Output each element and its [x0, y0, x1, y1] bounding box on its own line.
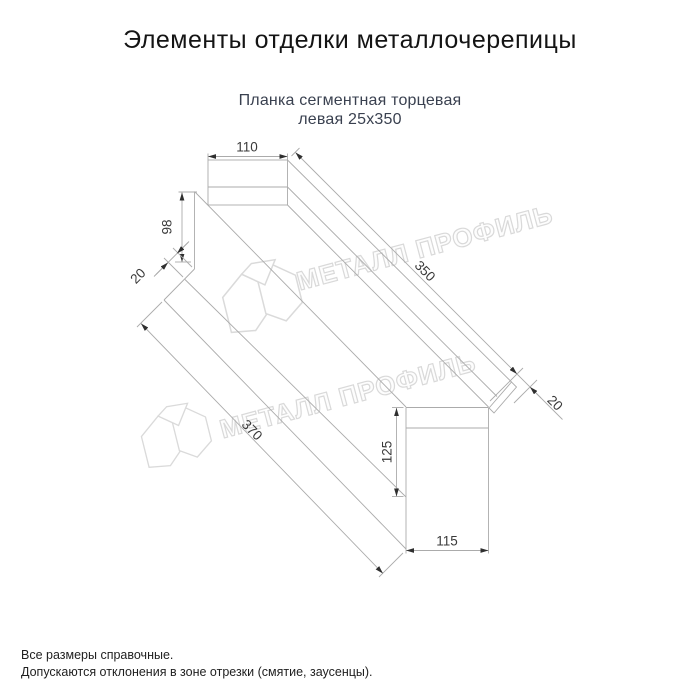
- dim-label-right-height: 125: [380, 441, 395, 464]
- dimension-lines: [137, 148, 563, 577]
- part-outline: [164, 160, 517, 554]
- page-title: Элементы отделки металлочерепицы: [123, 26, 577, 55]
- footnote-reference-sizes: Все размеры справочные.: [21, 648, 173, 662]
- dim-label-top-width: 110: [236, 140, 258, 155]
- part-name-line2: левая 25х350: [298, 111, 401, 129]
- part-name-line1: Планка сегментная торцевая: [239, 92, 462, 110]
- drawing-sheet: МЕТАЛЛ ПРОФИЛЬ МЕТАЛЛ ПРОФИЛЬ: [0, 0, 700, 700]
- dim-label-left-height: 98: [160, 219, 175, 234]
- footnote-tolerance: Допускаются отклонения в зоне отрезки (с…: [21, 665, 373, 679]
- metall-profil-logo-lower: [136, 398, 215, 471]
- dim-label-right-width: 115: [436, 534, 458, 549]
